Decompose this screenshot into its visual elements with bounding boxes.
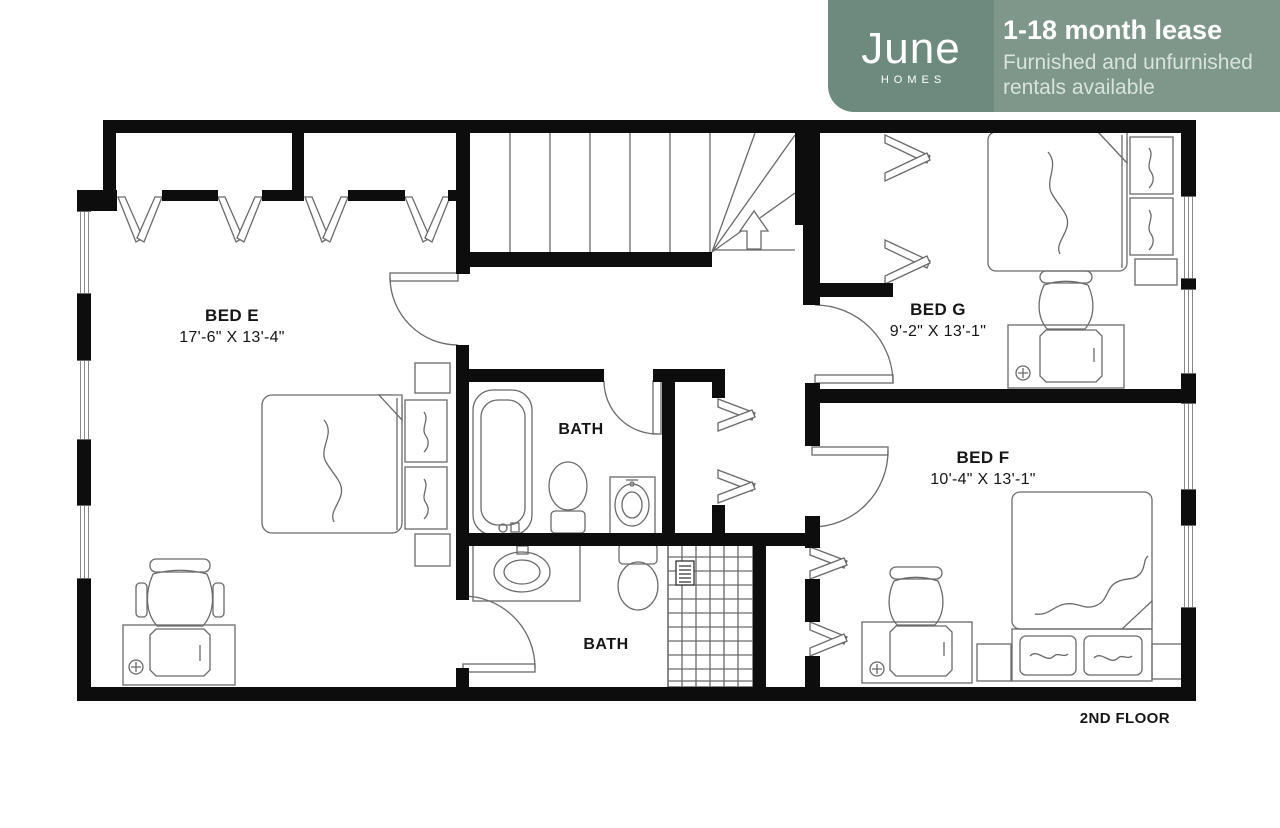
window (77, 360, 91, 440)
wall-segment (795, 120, 820, 225)
pillow (1084, 636, 1142, 675)
door-panel (815, 375, 893, 383)
bathtub (473, 390, 532, 535)
wall-segment (77, 292, 91, 360)
wall-segment (162, 190, 218, 201)
window (1181, 289, 1196, 374)
cabinet (415, 363, 450, 393)
sink (610, 477, 655, 537)
brand-logo: June (861, 27, 960, 71)
room-label-bed-e: BED E 17'-6" X 13'-4" (112, 306, 352, 347)
brand-logo-panel: June HOMES (828, 0, 994, 112)
wall-segment (653, 369, 725, 382)
bed-e-furniture (123, 363, 450, 685)
wall-segment (456, 668, 469, 701)
window (1181, 403, 1196, 490)
wall-segment (820, 283, 893, 297)
window (1181, 196, 1196, 279)
wall-segment (77, 577, 91, 701)
door-panel (653, 381, 661, 434)
room-dimensions: 9'-2" X 13'-1" (818, 323, 1058, 341)
badge-subtext-line2: rentals available (1003, 76, 1270, 100)
wall-segment (103, 120, 1196, 133)
laptop (890, 626, 952, 676)
cabinet (415, 534, 450, 566)
room-name: BED E (112, 306, 352, 326)
bed (1012, 492, 1152, 629)
nightstand (405, 467, 447, 529)
room-name: BED F (863, 448, 1103, 468)
bed-g-furniture (988, 132, 1177, 388)
toilet (549, 462, 587, 533)
brand-message-panel: 1-18 month lease Furnished and unfurnish… (994, 0, 1280, 112)
shower (668, 543, 753, 687)
stairs-up-arrow-icon (740, 211, 768, 249)
door-arc (463, 596, 535, 668)
door-panel (390, 273, 458, 281)
wall-segment (753, 546, 766, 701)
wall-segment (805, 403, 820, 446)
wall-segment (662, 382, 675, 545)
wall-segment (77, 438, 91, 505)
wall-segment (348, 190, 405, 201)
wall-segment (77, 687, 1196, 701)
side-table (1135, 259, 1177, 285)
wall-segment (292, 133, 304, 201)
nightstand (977, 644, 1011, 681)
bed-f-furniture (862, 492, 1182, 683)
room-name: BED G (818, 300, 1058, 320)
wall-segment (77, 190, 117, 211)
door-arc (390, 277, 458, 345)
brand-logo-subtitle: HOMES (876, 74, 946, 86)
wall-segment (803, 225, 820, 305)
room-label-bath-2: BATH (556, 636, 656, 654)
room-label-bed-g: BED G 9'-2" X 13'-1" (818, 300, 1058, 341)
wall-segment (1181, 120, 1196, 196)
window (1181, 525, 1196, 608)
room-label-bath-1: BATH (531, 421, 631, 439)
wall-segment (805, 579, 820, 622)
wall-segment (103, 120, 116, 198)
headboard (1012, 629, 1152, 681)
laptop (150, 629, 210, 676)
window (77, 211, 91, 294)
wall-segment (1181, 606, 1196, 701)
toilet (618, 544, 658, 610)
room-dimensions: 10'-4" X 13'-1" (863, 471, 1103, 489)
wall-segment (456, 345, 469, 600)
desk (862, 622, 972, 683)
vanity-sink (473, 545, 580, 601)
wall-segment (469, 533, 820, 546)
staircase (510, 133, 795, 252)
wall-segment (712, 382, 725, 398)
wall-segment (456, 252, 712, 267)
floor-plan-canvas: BED E 17'-6" X 13'-4" BED G 9'-2" X 13'-… (0, 0, 1280, 828)
room-label-bed-f: BED F 10'-4" X 13'-1" (863, 448, 1103, 489)
wall-segment (805, 656, 820, 701)
wall-segment (1181, 488, 1196, 525)
door-panel (463, 664, 535, 672)
room-dimensions: 17'-6" X 13'-4" (112, 329, 352, 347)
floor-label: 2ND FLOOR (1018, 710, 1170, 727)
badge-subtext-line1: Furnished and unfurnished (1003, 51, 1270, 75)
nightstand (1152, 644, 1182, 679)
wall-segment (805, 389, 1196, 403)
nightstand (405, 400, 447, 462)
wall-segment (469, 369, 604, 382)
wall-segment (456, 120, 470, 274)
badge-headline: 1-18 month lease (1003, 14, 1270, 46)
pillow (1020, 636, 1076, 675)
bed (262, 395, 402, 533)
window (77, 505, 91, 579)
badge-subtext: Furnished and unfurnished rentals availa… (1003, 51, 1270, 100)
brand-badge: June HOMES 1-18 month lease Furnished an… (828, 0, 1280, 112)
